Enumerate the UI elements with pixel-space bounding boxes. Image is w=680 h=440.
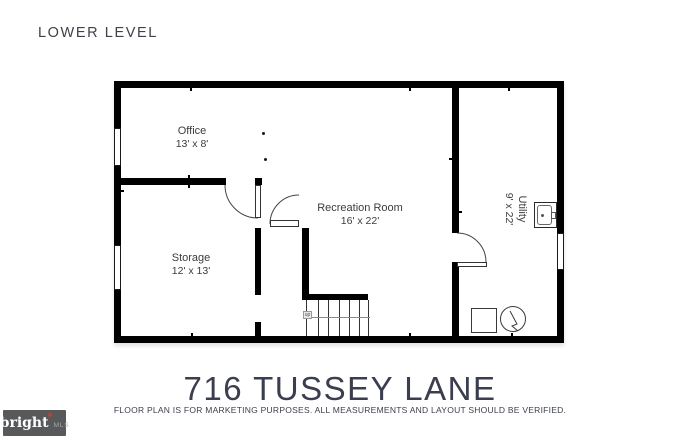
- room-name: Utility: [515, 179, 528, 239]
- disclaimer-text: FLOOR PLAN IS FOR MARKETING PURPOSES. AL…: [0, 405, 680, 415]
- sink-drain: [541, 214, 544, 217]
- level-label: LOWER LEVEL: [38, 25, 158, 41]
- window-icon: [114, 245, 121, 290]
- room-dimensions: 13' x 8': [142, 138, 242, 151]
- room-label-office: Office 13' x 8': [142, 125, 242, 151]
- page-title: 716 TUSSEY LANE: [0, 370, 680, 408]
- closet-door-panel: [270, 220, 299, 227]
- window-icon: [557, 233, 564, 270]
- logo-wordmark: bright✱: [0, 416, 49, 430]
- sink-basin: [537, 205, 552, 225]
- sink-faucet: [551, 212, 556, 219]
- room-name: Storage: [141, 252, 241, 265]
- room-dimensions: 9' x 22': [502, 179, 515, 239]
- utility-door-panel: [457, 262, 487, 267]
- room-label-utility: Utility 9' x 22': [488, 179, 528, 239]
- storage-door-panel: [255, 185, 261, 218]
- sink-icon: [534, 202, 557, 228]
- room-label-storage: Storage 12' x 13': [141, 252, 241, 278]
- room-dimensions: 16' x 22': [300, 215, 420, 228]
- door-arc-icon: [457, 233, 486, 262]
- window-icon: [114, 128, 121, 166]
- floor-plan: up Office 13' x 8' Storage 12' x 13' Rec…: [114, 81, 564, 343]
- door-arc-icon: [225, 185, 258, 218]
- logo-text: bright: [0, 415, 49, 431]
- room-dimensions: 12' x 13': [141, 265, 241, 278]
- logo-spark-icon: ✱: [48, 413, 53, 419]
- logo-suffix: MLS: [54, 422, 70, 429]
- room-name: Office: [142, 125, 242, 138]
- room-label-recreation: Recreation Room 16' x 22': [300, 202, 420, 228]
- water-heater-icon: [501, 307, 526, 332]
- bright-mls-logo: bright✱ MLS: [3, 410, 66, 436]
- room-name: Recreation Room: [300, 202, 420, 215]
